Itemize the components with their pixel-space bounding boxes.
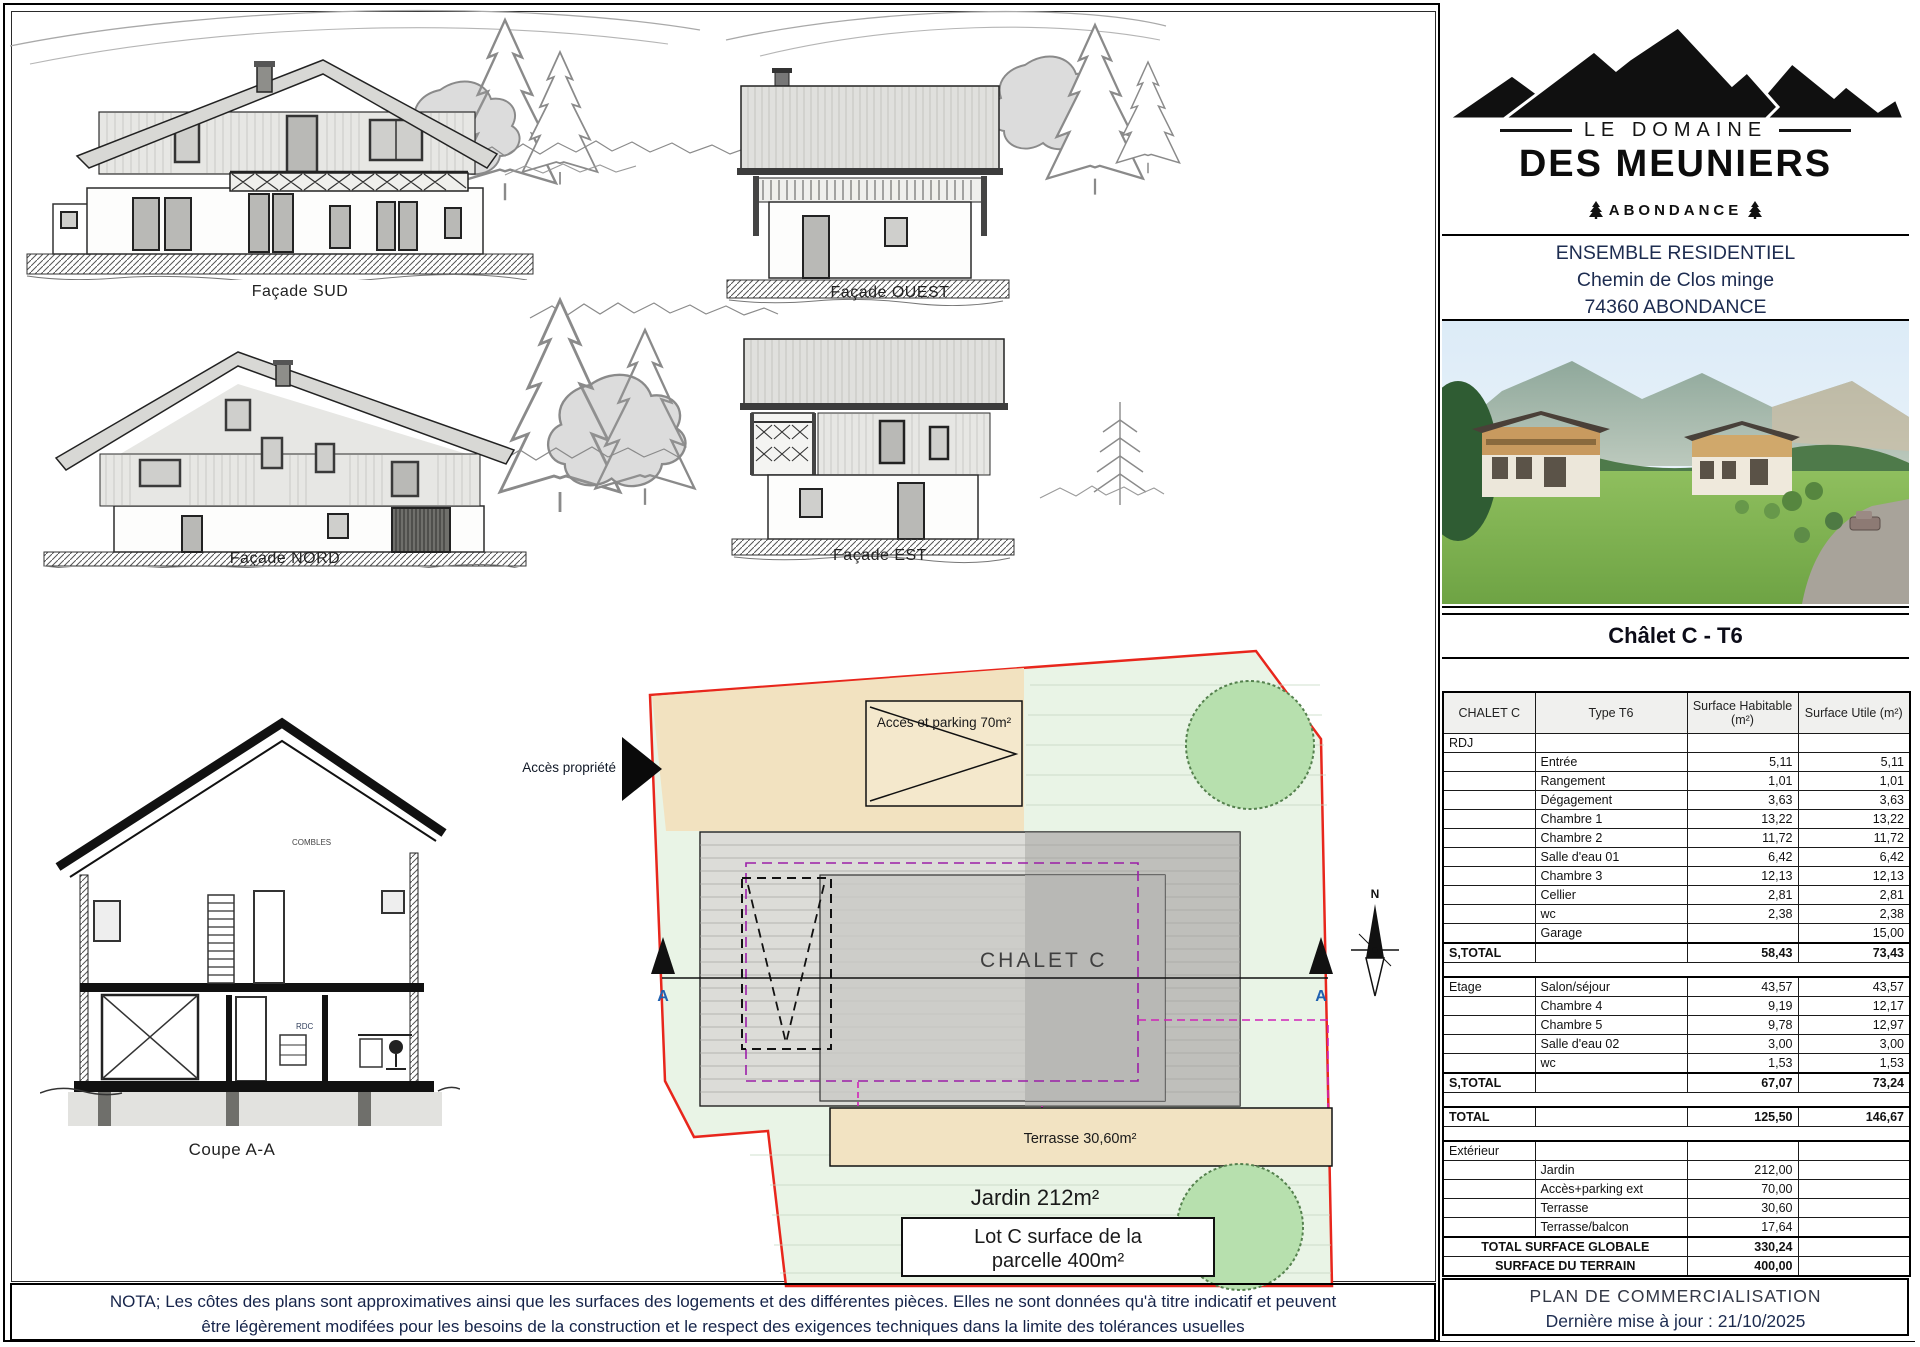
project-photo	[1442, 321, 1909, 608]
title-block-panel: LE DOMAINE DES MEUNIERS ABONDANCE ENSEMB…	[1438, 3, 1919, 1341]
spacer-row	[1443, 1093, 1910, 1108]
table-row: EtageSalon/séjour43,5743,57	[1443, 977, 1910, 997]
chalet-title: Châlet C - T6	[1608, 623, 1742, 649]
section-row-exterieur: Extérieur	[1443, 1141, 1910, 1161]
table-row: Cellier2,812,81	[1443, 886, 1910, 905]
pine-tree-icon	[1748, 201, 1762, 219]
surface-table-wrap: CHALET C Type T6 Surface Habitable (m²) …	[1442, 691, 1909, 1277]
subtotal-row-etage: S,TOTAL67,0773,24	[1443, 1073, 1910, 1093]
lot-info-line2: parcelle 400m²	[992, 1250, 1125, 1272]
nota-line1: NOTA; Les côtes des plans sont approxima…	[12, 1289, 1434, 1314]
footer-update-date: Dernière mise à jour : 21/10/2025	[1444, 1311, 1907, 1332]
lot-info-line1: Lot C surface de la	[974, 1226, 1143, 1248]
table-row: Chambre 211,7211,72	[1443, 829, 1910, 848]
terrain-row: SURFACE DU TERRAIN400,00	[1443, 1257, 1910, 1277]
table-row: wc2,382,38	[1443, 905, 1910, 924]
facade-ouest-drawing	[725, 68, 1015, 306]
site-plan: Accès et parking 70m² Terrasse 30,60m² C…	[450, 555, 1438, 1300]
plan-footer-box: PLAN DE COMMERCIALISATION Dernière mise …	[1442, 1278, 1909, 1336]
facade-ouest-label: Façade OUEST	[770, 284, 1010, 302]
surface-table: CHALET C Type T6 Surface Habitable (m²) …	[1442, 691, 1911, 1277]
brand-location: ABONDANCE	[1442, 201, 1909, 219]
table-row: Chambre 312,1312,13	[1443, 867, 1910, 886]
table-row: Jardin212,00	[1443, 1161, 1910, 1180]
table-row: Rangement1,011,01	[1443, 772, 1910, 791]
facade-sud-drawing	[25, 8, 555, 280]
table-row: Accès+parking ext70,00	[1443, 1180, 1910, 1199]
facade-sud-label: Façade SUD	[180, 283, 420, 301]
footer-title: PLAN DE COMMERCIALISATION	[1444, 1286, 1907, 1307]
table-row: Chambre 49,1912,17	[1443, 997, 1910, 1016]
roof	[744, 339, 1004, 405]
tree-circle-top	[1186, 681, 1314, 809]
spacer-row	[1443, 1127, 1910, 1142]
table-row: Dégagement3,633,63	[1443, 791, 1910, 810]
ground-hatch	[27, 254, 533, 274]
table-row: Terrasse/balcon17,64	[1443, 1218, 1910, 1238]
roof	[741, 86, 999, 170]
total-globale-row: TOTAL SURFACE GLOBALE330,24	[1443, 1237, 1910, 1257]
access-property-label: Accès propriété	[522, 760, 616, 775]
spacer-row	[1443, 963, 1910, 978]
table-header-row: CHALET C Type T6 Surface Habitable (m²) …	[1443, 692, 1910, 734]
brand-line1: LE DOMAINE	[1442, 119, 1909, 142]
address-line3: 74360 ABONDANCE	[1442, 294, 1909, 321]
nota-line2: être légèrement modifées pour les besoin…	[12, 1314, 1434, 1339]
col-header-type: Type T6	[1535, 692, 1687, 734]
table-row: Terrasse30,60	[1443, 1199, 1910, 1218]
mountains-logo-icon	[1446, 15, 1906, 121]
facade-nord-label: Façade NORD	[165, 550, 405, 568]
address-box: ENSEMBLE RESIDENTIEL Chemin de Clos ming…	[1442, 236, 1909, 321]
parking-label: Accès et parking 70m²	[877, 715, 1012, 730]
plan-sheet: Façade SUD Façade OUEST	[0, 0, 1920, 1347]
table-row: Salle d'eau 023,003,00	[1443, 1035, 1910, 1054]
col-header-habitable: Surface Habitable (m²)	[1687, 692, 1798, 734]
brand-logo-box: LE DOMAINE DES MEUNIERS ABONDANCE	[1442, 3, 1909, 236]
subtotal-row-rdj: S,TOTAL58,4373,43	[1443, 943, 1910, 963]
combles-label: COMBLES	[292, 838, 331, 847]
table-row: Entrée5,115,11	[1443, 753, 1910, 772]
section-a-left: A	[657, 988, 669, 1005]
table-row: Garage15,00	[1443, 924, 1910, 944]
jardin-label: Jardin 212m²	[971, 1185, 1099, 1210]
rdc-label: RDC	[296, 1022, 314, 1031]
nota-box: NOTA; Les côtes des plans sont approxima…	[10, 1283, 1436, 1341]
table-row: wc1,531,53	[1443, 1054, 1910, 1074]
col-header-utile: Surface Utile (m²)	[1798, 692, 1910, 734]
col-header-chalet: CHALET C	[1443, 692, 1535, 734]
terrace-label: Terrasse 30,60m²	[1024, 1131, 1137, 1147]
section-a-right: A	[1315, 988, 1327, 1005]
north-compass-icon: N	[1351, 887, 1399, 996]
balcony	[230, 173, 468, 191]
svg-text:N: N	[1371, 887, 1380, 901]
coupe-aa-label: Coupe A-A	[112, 1140, 352, 1160]
brand-rule-right	[1779, 129, 1851, 132]
table-row: Chambre 59,7812,97	[1443, 1016, 1910, 1035]
table-row: Salle d'eau 016,426,42	[1443, 848, 1910, 867]
facade-nord-drawing	[40, 338, 530, 568]
address-line2: Chemin de Clos minge	[1442, 267, 1909, 294]
coupe-aa-drawing: COMBLES RDC	[40, 695, 460, 1135]
brand-rule-left	[1500, 129, 1572, 132]
brand-name: DES MEUNIERS	[1442, 143, 1909, 186]
chalet-c-label: CHALET C	[980, 949, 1107, 972]
address-line1: ENSEMBLE RESIDENTIEL	[1442, 240, 1909, 267]
chalet-title-band: Châlet C - T6	[1442, 613, 1909, 659]
table-row: Chambre 113,2213,22	[1443, 810, 1910, 829]
pine-tree-icon	[1589, 201, 1603, 219]
facade-est-drawing	[730, 325, 1020, 565]
section-row-rdj: RDJ	[1443, 734, 1910, 753]
balcony	[755, 178, 985, 202]
total-row: TOTAL125,50146,67	[1443, 1107, 1910, 1127]
